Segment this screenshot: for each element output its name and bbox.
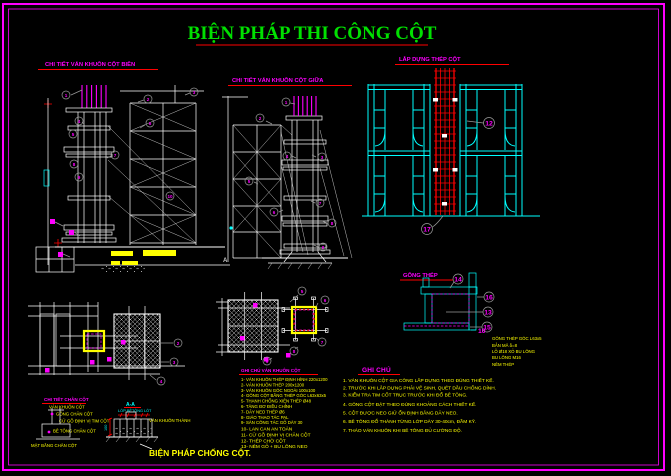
callout: 8 (70, 160, 78, 168)
callout: 5 (245, 177, 253, 185)
svg-text:6. BÊ TÔNG ĐỔ THÀNH TỪNG LỚP D: 6. BÊ TÔNG ĐỔ THÀNH TỪNG LỚP DÀY 30-40cm… (343, 417, 476, 425)
svg-text:1. VÁN KHUÔN CỘT GIA CÔNG LẮP: 1. VÁN KHUÔN CỘT GIA CÔNG LẮP DỰNG THEO … (343, 376, 494, 384)
callout: 4 (283, 152, 291, 160)
svg-text:100: 100 (104, 425, 108, 431)
drawing-canvas: BIỆN PHÁP THI CÔNG CỘT CHI TIẾT VÁN KHUÔ… (0, 0, 671, 476)
callout: 7 (316, 199, 324, 207)
callout: 6 (270, 208, 278, 216)
svg-text:5: 5 (72, 132, 75, 137)
svg-text:7: 7 (114, 153, 117, 158)
callout: 8 (290, 347, 298, 355)
callout: 4 (75, 117, 83, 125)
svg-text:3: 3 (321, 155, 324, 160)
section-title: CHI TIẾT VÁN KHUÔN CỘT BIÊN (45, 60, 135, 68)
svg-text:12- THÉP CHỜ CỘT: 12- THÉP CHỜ CỘT (241, 438, 286, 445)
callout: 17 (422, 224, 433, 235)
svg-text:VÁN KHUÔN THÀNH: VÁN KHUÔN THÀNH (149, 418, 190, 423)
svg-text:1- VÁN KHUÔN THÉP ĐỊNH HÌNH 22: 1- VÁN KHUÔN THÉP ĐỊNH HÌNH 220x1200 (241, 377, 328, 382)
plan-view-middle: 5 6 7 8 9 (216, 287, 329, 365)
callout: 6 (146, 119, 154, 127)
svg-text:GÔNG CHÂN CỘT: GÔNG CHÂN CỘT (56, 412, 93, 417)
svg-text:9: 9 (266, 359, 269, 364)
svg-text:3: 3 (193, 90, 196, 95)
svg-text:13: 13 (484, 309, 492, 316)
svg-text:8: 8 (73, 162, 76, 167)
notes-title: GHI CHÚ VÁN KHUÔN CỘT (241, 366, 301, 373)
formwork-notes: GHI CHÚ VÁN KHUÔN CỘT 1- VÁN KHUÔN THÉP … (239, 366, 328, 450)
detail-title: CHI TIẾT CHÂN CỘT (44, 395, 89, 402)
section-title: LẮP DỰNG THÉP CỘT (399, 55, 461, 63)
svg-text:6: 6 (273, 210, 276, 215)
svg-text:NÊM THÉP: NÊM THÉP (492, 362, 514, 367)
svg-text:BÊ TÔNG CHÂN CỘT: BÊ TÔNG CHÂN CỘT (53, 429, 96, 434)
column-section-detail (282, 297, 328, 341)
svg-text:CỮ GỖ ĐỊNH VỊ TIM CỘT: CỮ GỖ ĐỊNH VỊ TIM CỘT (59, 419, 110, 424)
section-rebar-erection: LẮP DỰNG THÉP CỘT 12 17 (362, 55, 540, 235)
callout: 3 (190, 88, 198, 96)
footing-detail-1: CHI TIẾT CHÂN CỘT VÁN KHUÔN CỘT GÔNG CHÂ… (31, 395, 110, 448)
callout: 6 (321, 296, 329, 304)
svg-text:4. GÔNG CỘT ĐẶT THEO ĐÚNG KHOẢ: 4. GÔNG CỘT ĐẶT THEO ĐÚNG KHOẢNG CÁCH TH… (343, 401, 476, 408)
svg-text:LỖ Ø18 XỎ BU LÔNG: LỖ Ø18 XỎ BU LÔNG (492, 349, 536, 354)
svg-text:7: 7 (321, 340, 324, 345)
callout: 13 (483, 307, 493, 317)
callout: 12 (484, 118, 495, 129)
svg-text:8- GIÁO THAO TÁC PAL: 8- GIÁO THAO TÁC PAL (241, 415, 289, 420)
callout: 10 (166, 192, 174, 200)
svg-text:VÁN KHUÔN CỘT: VÁN KHUÔN CỘT (49, 405, 85, 410)
svg-text:5: 5 (248, 179, 251, 184)
callout: 2 (256, 114, 264, 122)
callout: 16 (484, 292, 494, 302)
callout: 5 (69, 130, 77, 138)
callout: 14 (453, 274, 463, 284)
svg-text:8: 8 (331, 221, 334, 226)
ref-label: 10 (478, 328, 486, 335)
svg-text:7- DÂY NEO THÉP Ø6: 7- DÂY NEO THÉP Ø6 (241, 409, 285, 414)
svg-text:6: 6 (149, 121, 152, 126)
page-title: BIỆN PHÁP THI CÔNG CỘT (188, 22, 437, 44)
notes-title: GHI CHÚ (362, 365, 391, 374)
svg-text:1: 1 (65, 93, 68, 98)
svg-text:6: 6 (324, 298, 327, 303)
footing-detail-2: A-A LỚP BÊTÔNG LÓT 100 VÁN KHUÔN THÀNH (104, 402, 190, 449)
svg-text:4: 4 (160, 379, 163, 384)
callout: 5 (298, 287, 306, 295)
callout: 1 (282, 98, 290, 106)
svg-text:GÔNG THÉP GÓC L63x5: GÔNG THÉP GÓC L63x5 (492, 336, 542, 341)
svg-text:4: 4 (286, 154, 289, 159)
rebar-dots (293, 309, 315, 332)
svg-text:2: 2 (147, 97, 150, 102)
callout: 1 (62, 91, 70, 99)
svg-text:2- VÁN KHUÔN THÉP 200x1200: 2- VÁN KHUÔN THÉP 200x1200 (241, 382, 305, 387)
svg-text:6- TĂNG ĐƠ ĐIỀU CHỈNH: 6- TĂNG ĐƠ ĐIỀU CHỈNH (241, 404, 292, 409)
svg-text:10- LAN CAN AN TOÀN: 10- LAN CAN AN TOÀN (241, 426, 293, 433)
svg-text:16: 16 (485, 294, 493, 301)
callout: 3 (170, 358, 178, 366)
svg-text:14: 14 (454, 276, 462, 283)
callout: 4 (157, 377, 165, 385)
svg-text:3: 3 (173, 360, 176, 365)
svg-text:2: 2 (259, 116, 262, 121)
callout: 2 (174, 339, 182, 347)
section-cut-mark: A (223, 258, 228, 264)
callout: 7 (318, 338, 326, 346)
section-title: GÔNG THÉP (403, 271, 438, 279)
svg-text:9: 9 (78, 175, 81, 180)
section-steel-collar: GÔNG THÉP 14 16 13 15 10 GÔNG THÉP GÓC L… (400, 271, 542, 367)
svg-text:4- GÔNG CỘT BẰNG THÉP GÓC L63x: 4- GÔNG CỘT BẰNG THÉP GÓC L63x63x5 (241, 393, 327, 398)
svg-text:7: 7 (319, 201, 322, 206)
svg-text:17: 17 (423, 227, 431, 234)
svg-text:9: 9 (322, 245, 325, 250)
svg-text:11- CỮ GỖ ĐỊNH VỊ CHÂN CỘT: 11- CỮ GỖ ĐỊNH VỊ CHÂN CỘT (241, 432, 311, 439)
svg-text:10: 10 (167, 194, 173, 199)
svg-text:BIỆN PHÁP CHỐNG CỘT.: BIỆN PHÁP CHỐNG CỘT. (149, 447, 251, 458)
callout: 2 (144, 95, 152, 103)
svg-text:2. TRƯỚC KHI LẮP DỰNG PHẢI VỆ: 2. TRƯỚC KHI LẮP DỰNG PHẢI VỆ SINH, QUÉT… (343, 383, 496, 391)
collar-labels: GÔNG THÉP GÓC L63x5 BẢN MÃ δ=8 LỖ Ø18 XỎ… (492, 336, 542, 367)
cad-sheet: BIỆN PHÁP THI CÔNG CỘT CHI TIẾT VÁN KHUÔ… (0, 0, 671, 476)
svg-text:8: 8 (293, 349, 296, 354)
svg-text:1: 1 (285, 100, 288, 105)
svg-text:3- VÁN KHUÔN GÓC NGOÀI 100x100: 3- VÁN KHUÔN GÓC NGOÀI 100x100 (241, 388, 316, 393)
general-notes: GHI CHÚ 1. VÁN KHUÔN CỘT GIA CÔNG LẮP DỰ… (343, 365, 496, 434)
section-left-elevation: CHI TIẾT VÁN KHUÔN CỘT BIÊN (36, 60, 230, 272)
svg-text:BẢN MÃ δ=8: BẢN MÃ δ=8 (492, 343, 518, 348)
svg-text:2: 2 (177, 341, 180, 346)
section-title: CHI TIẾT VÁN KHUÔN CỘT GIỮA (232, 76, 324, 84)
svg-text:7. THÁO VÁN KHUÔN KHI BÊ TÔNG: 7. THÁO VÁN KHUÔN KHI BÊ TÔNG ĐỦ CƯỜNG Đ… (343, 426, 462, 434)
sheet-border (3, 4, 664, 470)
callout: 3 (318, 153, 326, 161)
plan-view-left: 2 3 4 (28, 302, 185, 385)
svg-text:5. CỘT ĐƯỢC NEO GIỮ ỔN ĐỊNH BẰ: 5. CỘT ĐƯỢC NEO GIỮ ỔN ĐỊNH BẰNG DÂY NEO… (343, 409, 458, 417)
svg-text:9- SÀN CÔNG TÁC GỖ DÀY 30: 9- SÀN CÔNG TÁC GỖ DÀY 30 (241, 420, 303, 425)
svg-text:5- THANH CHỐNG XIÊN THÉP Ø48: 5- THANH CHỐNG XIÊN THÉP Ø48 (241, 399, 312, 404)
svg-text:5: 5 (301, 289, 304, 294)
svg-text:MẶT BẰNG CHÂN CỘT: MẶT BẰNG CHÂN CỘT (31, 443, 77, 448)
svg-text:3. KIỂM TRA TIM CỐT TRỤC TRƯỚC: 3. KIỂM TRA TIM CỐT TRỤC TRƯỚC KHI ĐỔ BÊ… (343, 391, 467, 399)
svg-text:4: 4 (78, 119, 81, 124)
callout: 9 (75, 173, 83, 181)
main-title: BIỆN PHÁP THI CÔNG CỘT (188, 22, 437, 45)
section-middle-elevation: CHI TIẾT VÁN KHUÔN CỘT GIỮA A 1 2 3 4 5 (222, 76, 352, 269)
svg-text:12: 12 (485, 121, 493, 128)
svg-text:BU LÔNG M16: BU LÔNG M16 (492, 355, 522, 360)
bottom-annotations: BIỆN PHÁP CHỐNG CỘT. (149, 447, 251, 458)
